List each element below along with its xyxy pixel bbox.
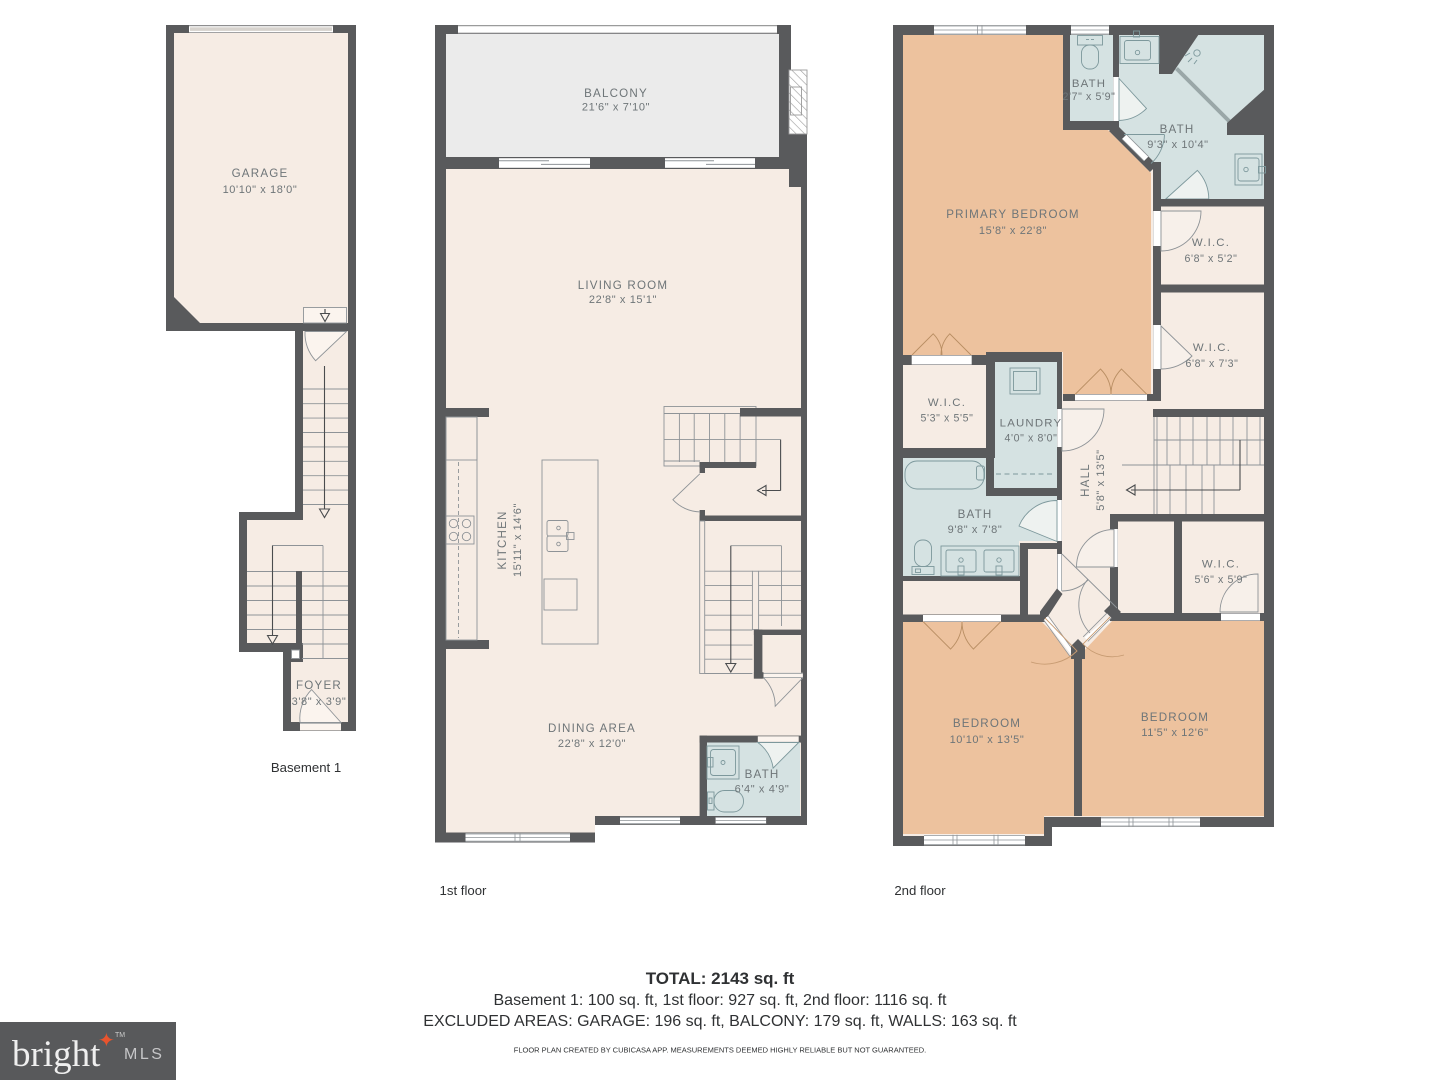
svg-text:1st floor: 1st floor [440,883,488,898]
svg-text:BATH: BATH [745,768,780,781]
svg-text:BATH: BATH [1160,123,1195,136]
svg-text:BEDROOM: BEDROOM [1141,711,1209,724]
svg-text:22'8" x 15'1": 22'8" x 15'1" [589,294,657,306]
svg-text:KITCHEN: KITCHEN [496,510,509,569]
svg-text:2nd floor: 2nd floor [894,883,946,898]
svg-text:15'11" x 14'6": 15'11" x 14'6" [512,503,524,577]
svg-text:Basement 1: Basement 1 [271,760,341,775]
svg-text:2'7" x 5'9": 2'7" x 5'9" [1063,91,1116,103]
svg-text:10'10" x 18'0": 10'10" x 18'0" [223,184,298,196]
svg-text:W.I.C.: W.I.C. [1192,237,1230,249]
svg-text:GARAGE: GARAGE [232,167,289,180]
svg-text:W.I.C.: W.I.C. [1202,559,1240,571]
svg-text:10'10" x 13'5": 10'10" x 13'5" [950,734,1025,746]
svg-text:21'6" x 7'10": 21'6" x 7'10" [582,102,650,114]
svg-text:9'8" x 7'8": 9'8" x 7'8" [948,524,1003,536]
svg-text:FLOOR PLAN CREATED BY CUBICASA: FLOOR PLAN CREATED BY CUBICASA APP. MEAS… [514,1046,926,1055]
svg-text:4'0" x 8'0": 4'0" x 8'0" [1005,433,1058,445]
svg-text:11'5" x 12'6": 11'5" x 12'6" [1141,727,1208,739]
svg-text:6'8" x 7'3": 6'8" x 7'3" [1186,358,1239,370]
svg-text:✦: ✦ [98,1030,115,1052]
svg-text:6'4" x 4'9": 6'4" x 4'9" [735,784,790,796]
svg-text:22'8" x 12'0": 22'8" x 12'0" [558,738,626,750]
svg-text:BATH: BATH [958,508,993,521]
svg-text:MLS: MLS [124,1046,164,1063]
svg-text:3'8" x 3'9": 3'8" x 3'9" [292,696,347,708]
svg-text:5'6" x 5'9": 5'6" x 5'9" [1195,574,1248,586]
svg-text:5'8" x 13'5": 5'8" x 13'5" [1095,449,1107,510]
svg-text:6'8" x 5'2": 6'8" x 5'2" [1185,253,1238,265]
svg-text:TM: TM [115,1032,125,1039]
svg-text:15'8" x 22'8": 15'8" x 22'8" [979,225,1047,237]
svg-text:EXCLUDED AREAS: GARAGE: 196 sq: EXCLUDED AREAS: GARAGE: 196 sq. ft, BALC… [423,1013,1017,1030]
svg-text:DINING AREA: DINING AREA [548,722,636,735]
svg-text:PRIMARY BEDROOM: PRIMARY BEDROOM [946,208,1080,221]
svg-text:TOTAL: 2143 sq. ft: TOTAL: 2143 sq. ft [646,969,795,988]
svg-text:HALL: HALL [1079,463,1092,497]
svg-text:LIVING ROOM: LIVING ROOM [578,279,669,292]
svg-text:W.I.C.: W.I.C. [1193,342,1231,354]
svg-text:5'3" x 5'5": 5'3" x 5'5" [921,413,974,425]
svg-text:LAUNDRY: LAUNDRY [1000,418,1063,430]
svg-text:bright: bright [12,1034,101,1075]
svg-text:Basement 1: 100 sq. ft, 1st fl: Basement 1: 100 sq. ft, 1st floor: 927 s… [494,992,948,1009]
svg-text:W.I.C.: W.I.C. [928,397,966,409]
svg-text:BALCONY: BALCONY [584,87,648,100]
svg-text:BEDROOM: BEDROOM [953,717,1021,730]
svg-text:FOYER: FOYER [296,679,342,692]
svg-text:BATH: BATH [1072,78,1106,90]
svg-text:9'3" x 10'4": 9'3" x 10'4" [1147,139,1208,151]
